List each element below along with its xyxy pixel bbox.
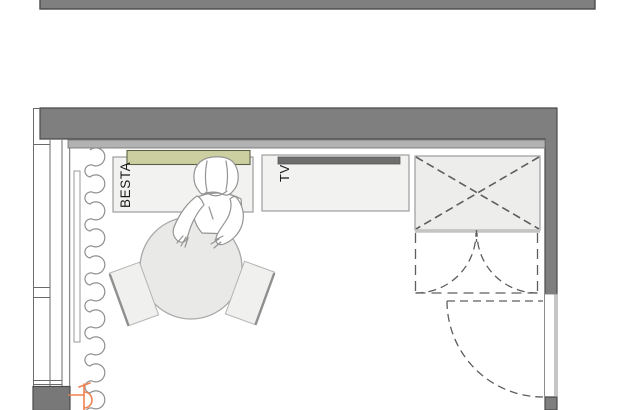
curtain-pelmet: [74, 171, 80, 342]
person-hair: [194, 157, 238, 195]
entry-door-swing[interactable]: [447, 301, 543, 397]
neighbor-wall: [40, 0, 595, 9]
curtain: [85, 148, 105, 410]
door-opening: [545, 294, 558, 397]
wardrobe[interactable]: [415, 156, 540, 231]
floor-plan: BESTA TV: [0, 0, 620, 410]
power-outlet-icon: [69, 383, 92, 410]
wardrobe-door-swing[interactable]: [416, 230, 538, 293]
right-wall-lower: [545, 397, 557, 410]
tv-screen[interactable]: [278, 157, 400, 164]
window: [34, 108, 70, 410]
besta-label: BESTA: [118, 162, 133, 208]
wall-pier: [33, 387, 70, 410]
bulkhead: [68, 140, 545, 148]
tv-label: TV: [277, 164, 292, 182]
